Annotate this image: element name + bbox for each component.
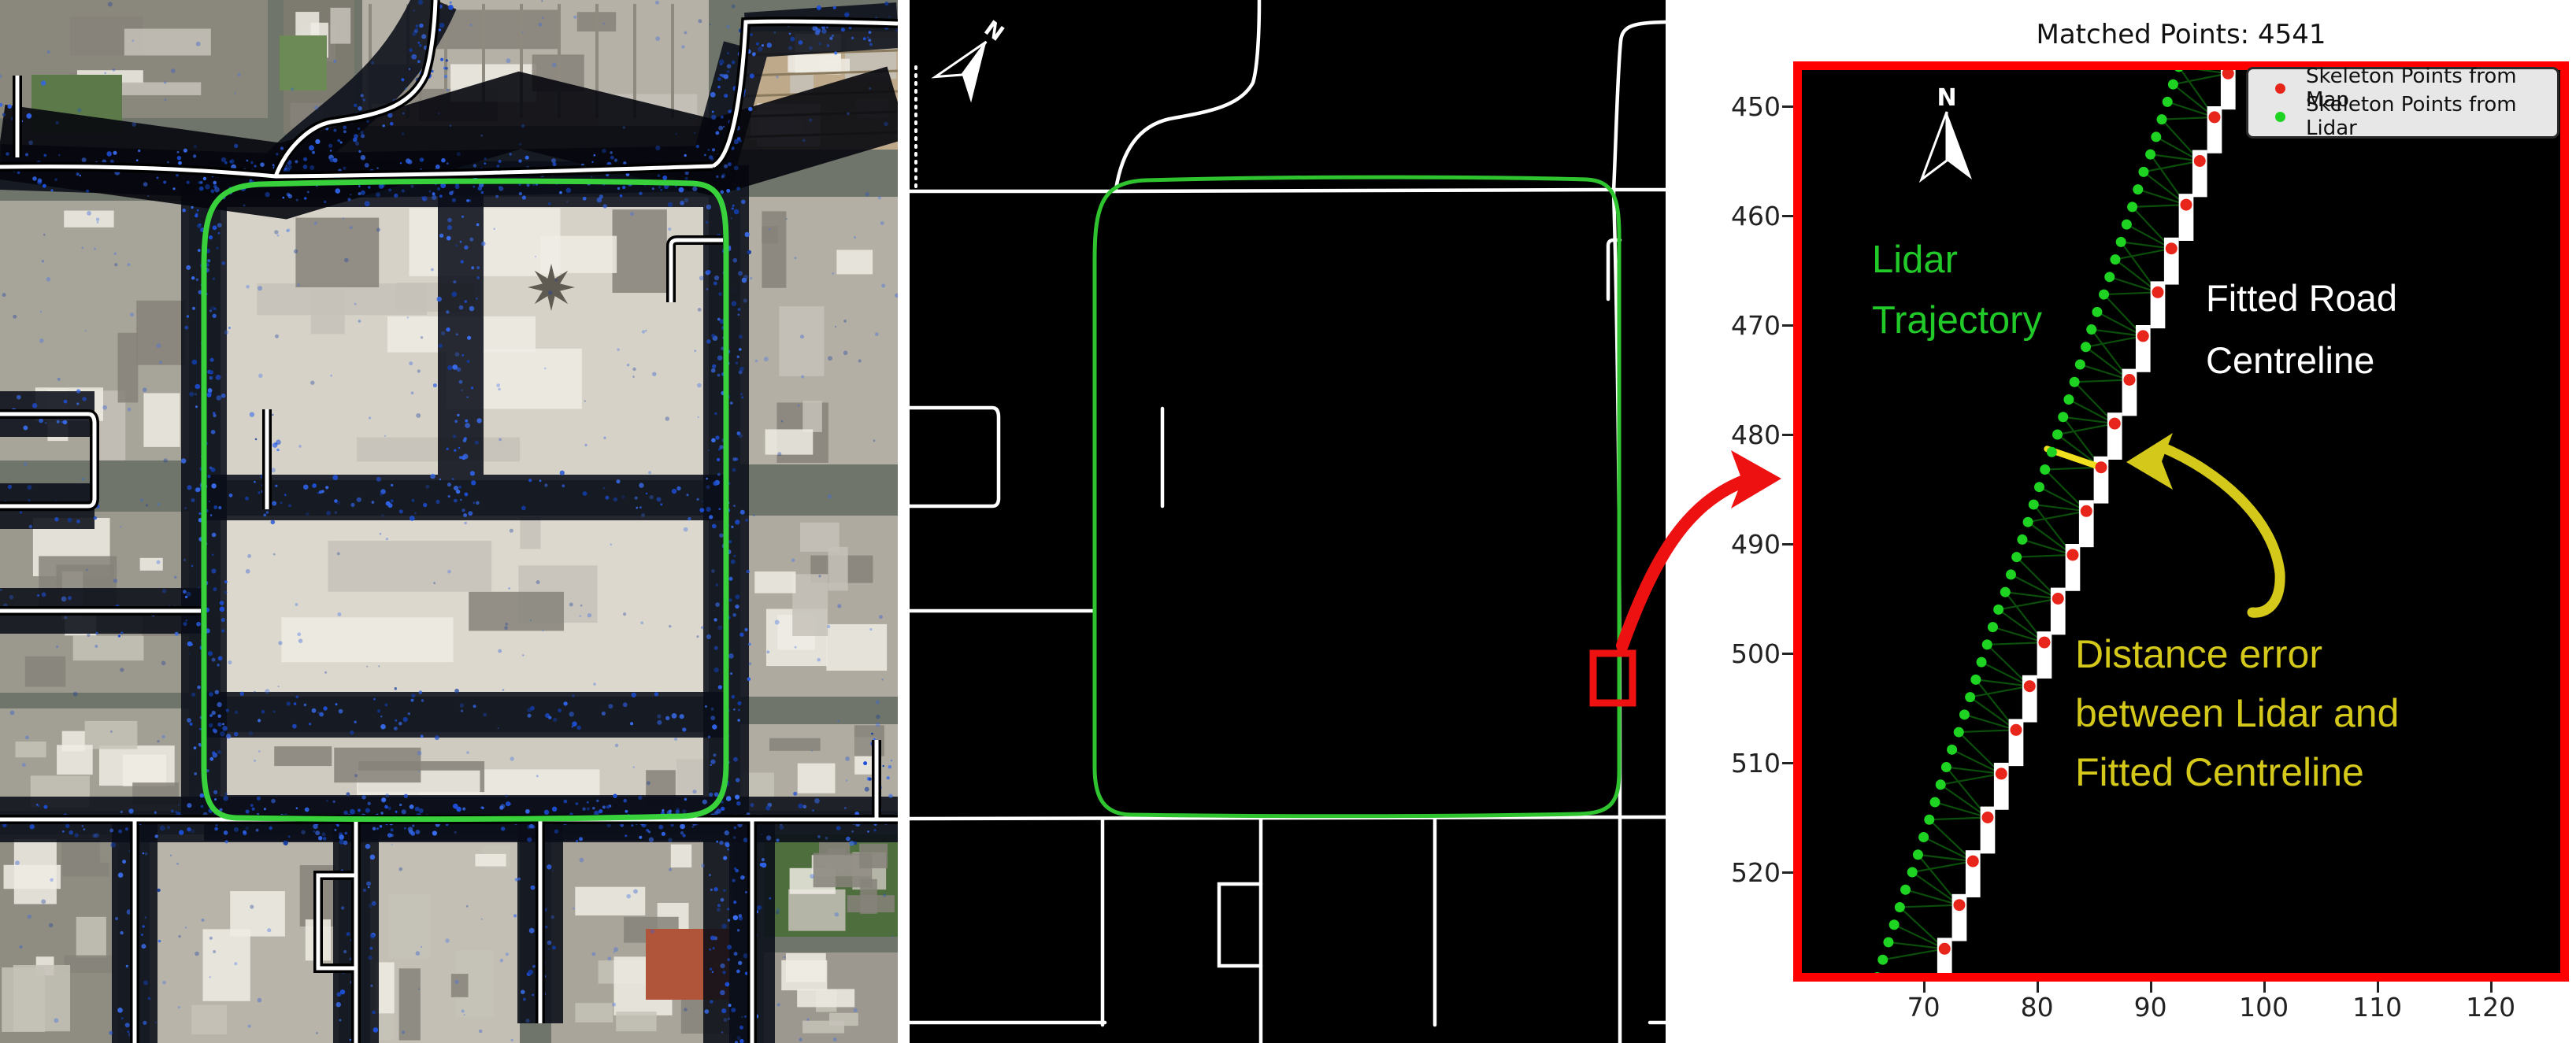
lidar-point <box>711 708 714 711</box>
distance-error-annotation: Distance error between Lidar and Fitted … <box>2075 625 2399 802</box>
lidar-point <box>95 833 99 838</box>
building-roof <box>792 574 828 636</box>
lidar-point <box>572 694 575 697</box>
lidar-point <box>748 662 751 665</box>
lidar-point <box>694 350 696 352</box>
lidar-point <box>869 31 872 34</box>
lidar-point <box>284 841 288 845</box>
lidar-point <box>471 266 474 269</box>
lidar-point <box>728 653 734 659</box>
lidar-point <box>287 228 290 231</box>
lidar-point <box>719 534 723 538</box>
lidar-point <box>187 803 191 808</box>
lidar-point <box>110 842 116 848</box>
lidar-point <box>795 646 797 649</box>
lidar-point <box>739 335 743 338</box>
lidar-skeleton-point <box>2104 272 2115 282</box>
lidar-point <box>655 1 659 5</box>
lidar-point <box>614 159 617 162</box>
lidar-point <box>602 712 606 716</box>
lidar-point <box>658 825 663 830</box>
lidar-point <box>211 568 216 573</box>
lidar-point <box>710 936 715 941</box>
building-roof <box>140 558 163 571</box>
lidar-point <box>316 1032 318 1034</box>
lidar-point <box>494 228 495 230</box>
lidar-point <box>724 94 728 98</box>
lidar-point <box>459 305 464 310</box>
lidar-point <box>658 174 661 177</box>
lidar-point <box>175 811 177 813</box>
lidar-point <box>623 702 628 707</box>
lidar-point <box>411 699 414 702</box>
lidar-point <box>213 412 215 414</box>
lidar-point <box>510 756 514 760</box>
annotation-line: Distance error <box>2075 625 2399 684</box>
lidar-point <box>712 724 717 729</box>
lidar-point <box>307 191 309 194</box>
lidar-point <box>254 165 257 168</box>
lidar-point <box>448 6 450 8</box>
lidar-point <box>381 514 384 517</box>
lidar-point <box>717 904 721 907</box>
lidar-point <box>213 790 217 794</box>
y-tick-label: 470 <box>1714 313 1781 338</box>
lidar-point <box>309 723 311 725</box>
lidar-point <box>708 449 710 451</box>
lidar-point <box>363 98 365 101</box>
lidar-point <box>421 336 423 338</box>
lidar-point <box>65 616 68 620</box>
lidar-point <box>370 934 375 938</box>
lidar-point <box>732 207 734 209</box>
lidar-point <box>505 794 507 797</box>
lidar-point <box>6 152 9 155</box>
building-roof <box>800 523 840 552</box>
lidar-point <box>368 802 371 805</box>
lidar-point <box>250 804 254 807</box>
lidar-point <box>361 134 365 138</box>
building-roof <box>797 989 854 1007</box>
lidar-point <box>529 824 534 829</box>
lidar-point <box>221 629 224 632</box>
lidar-point <box>365 808 370 813</box>
lidar-point <box>727 70 730 73</box>
lidar-point <box>594 154 596 157</box>
lidar-point <box>254 760 256 762</box>
lidar-point <box>498 388 500 390</box>
lidar-point <box>104 72 106 75</box>
lidar-point <box>277 235 280 237</box>
lidar-point <box>366 120 369 123</box>
lidar-point <box>454 499 458 503</box>
lidar-point <box>526 1019 530 1023</box>
lidar-point <box>404 827 406 830</box>
lidar-point <box>201 805 204 808</box>
lidar-point <box>32 176 37 181</box>
lidar-point <box>464 246 468 250</box>
lidar-point <box>120 811 123 813</box>
lidar-point <box>536 580 540 584</box>
lidar-point <box>711 569 715 573</box>
lidar-point <box>737 719 739 721</box>
lidar-skeleton-point <box>1924 815 1934 825</box>
lidar-point <box>613 497 617 501</box>
lidar-point <box>461 216 464 218</box>
lidar-point <box>410 516 415 521</box>
lidar-point <box>418 989 420 990</box>
lidar-point <box>278 641 282 645</box>
lidar-point <box>743 275 748 279</box>
skeleton-background <box>910 0 1666 1043</box>
lidar-point <box>448 495 450 497</box>
y-tick-mark <box>1782 434 1793 436</box>
map-skeleton-point <box>1981 812 1993 823</box>
lidar-point <box>593 682 596 686</box>
lidar-point <box>284 494 287 496</box>
lidar-point <box>777 1003 780 1006</box>
lidar-skeleton-point <box>2099 290 2109 300</box>
building-roof <box>328 541 491 592</box>
lidar-point <box>198 586 200 589</box>
lidar-point <box>706 339 711 344</box>
lidar-point <box>297 283 299 286</box>
lidar-point <box>867 830 869 833</box>
lidar-point <box>228 327 231 329</box>
lidar-point <box>358 106 362 111</box>
building-roof <box>814 853 873 888</box>
lidar-skeleton-point <box>1959 709 1970 719</box>
building-roof <box>65 956 113 973</box>
lidar-point <box>207 475 210 478</box>
lidar-point <box>305 808 309 812</box>
lidar-point <box>715 435 719 439</box>
lidar-point <box>620 194 623 198</box>
lidar-point <box>704 1009 709 1014</box>
lidar-point <box>405 87 406 89</box>
x-tick-label: 80 <box>2002 992 2073 1023</box>
lidar-point <box>258 374 262 378</box>
lidar-point <box>762 858 765 861</box>
lidar-point <box>706 221 709 224</box>
map-skeleton-point <box>2081 505 2092 517</box>
lidar-point <box>791 558 795 562</box>
y-tick-mark <box>1782 543 1793 546</box>
lidar-point <box>390 122 394 126</box>
lidar-point <box>26 113 32 119</box>
building-roof <box>295 218 379 287</box>
lidar-point <box>723 856 727 860</box>
lidar-point <box>869 43 873 46</box>
lidar-point <box>414 512 417 515</box>
lidar-point <box>419 690 423 694</box>
lidar-point <box>28 915 32 919</box>
lidar-point <box>436 500 439 504</box>
lidar-point <box>288 835 291 838</box>
lidar-point <box>272 442 278 448</box>
lidar-skeleton-point <box>2006 569 2016 579</box>
lidar-point <box>54 178 57 181</box>
lidar-point <box>83 828 85 830</box>
lidar-point <box>761 834 762 835</box>
lidar-point <box>528 479 532 482</box>
lidar-point <box>271 520 276 525</box>
lidar-point <box>723 890 725 892</box>
lidar-point <box>330 150 332 152</box>
lidar-point <box>446 59 448 61</box>
lidar-point <box>654 692 658 696</box>
lidar-point <box>220 601 224 605</box>
lidar-point <box>810 874 814 878</box>
lidar-point <box>461 1010 465 1013</box>
lidar-point <box>466 905 469 908</box>
lidar-skeleton-point <box>2092 307 2102 317</box>
lidar-point <box>416 413 421 418</box>
lidar-point <box>714 276 719 280</box>
lidar-skeleton-point <box>2000 587 2011 597</box>
lidar-point <box>692 187 697 191</box>
lidar-point <box>208 388 213 393</box>
lidar-point <box>465 522 467 524</box>
lidar-point <box>466 751 469 753</box>
lidar-point <box>884 122 888 127</box>
annotation-line: between Lidar and <box>2075 684 2399 743</box>
lidar-point <box>319 712 324 717</box>
lidar-point <box>612 1003 616 1007</box>
lidar-point <box>86 569 88 571</box>
lidar-point <box>276 449 280 452</box>
lidar-point <box>867 36 869 39</box>
lidar-point <box>844 12 849 17</box>
lidar-point <box>115 917 118 920</box>
lidar-point <box>234 962 237 965</box>
lidar-point <box>657 720 662 725</box>
lidar-point <box>147 195 149 197</box>
lidar-point <box>615 744 618 747</box>
lidar-point <box>43 805 47 809</box>
lidar-point <box>382 797 386 801</box>
lidar-point <box>65 824 70 829</box>
lidar-point <box>194 145 197 148</box>
lidar-point <box>385 704 388 707</box>
lidar-point <box>584 400 586 401</box>
lidar-point <box>125 827 128 830</box>
lidar-point <box>777 908 780 912</box>
lidar-point <box>380 533 382 535</box>
lidar-point <box>163 458 167 462</box>
lidar-point <box>421 734 424 738</box>
lidar-point <box>189 653 191 654</box>
lidar-point <box>826 26 828 28</box>
lidar-point <box>210 376 213 379</box>
lidar-point <box>777 452 781 456</box>
building-roof <box>469 592 564 631</box>
lidar-point <box>649 838 654 842</box>
lidar-point <box>680 714 684 719</box>
y-tick-mark <box>1782 105 1793 108</box>
lidar-point <box>650 930 654 934</box>
lidar-skeleton-point <box>1895 902 1905 912</box>
lidar-point <box>199 745 202 747</box>
lidar-point <box>143 853 145 855</box>
building-roof <box>765 429 814 454</box>
lidar-point <box>132 39 135 42</box>
lidar-point <box>280 501 283 504</box>
lidar-point <box>187 315 189 317</box>
lidar-point <box>576 726 581 730</box>
lidar-point <box>679 187 684 193</box>
lidar-point <box>309 145 314 150</box>
lidar-point <box>432 195 436 200</box>
lidar-point <box>177 156 181 160</box>
lidar-point <box>183 622 187 626</box>
map-skeleton-point <box>2208 111 2220 123</box>
lidar-point <box>160 826 165 831</box>
lidar-point <box>712 364 716 368</box>
lidar-point <box>617 349 619 351</box>
lidar-point <box>128 408 132 412</box>
x-tick-mark <box>2377 982 2379 993</box>
lidar-point <box>734 952 738 956</box>
lidar-point <box>326 800 328 802</box>
lidar-point <box>620 824 622 827</box>
lidar-point <box>711 438 716 443</box>
lidar-point <box>10 711 15 716</box>
lidar-point <box>141 934 143 936</box>
lidar-point <box>417 751 422 756</box>
lidar-point <box>161 661 166 666</box>
lidar-point <box>765 806 770 811</box>
lidar-point <box>748 107 753 112</box>
y-tick-label: 460 <box>1714 203 1781 229</box>
lidar-skeleton-point <box>2157 114 2167 124</box>
lidar-point <box>727 64 732 68</box>
lidar-point <box>254 481 256 483</box>
lidar-point <box>712 524 717 529</box>
lidar-point <box>484 162 487 165</box>
lidar-point <box>740 393 743 395</box>
lidar-point <box>547 864 551 869</box>
y-tick-label: 450 <box>1714 94 1781 120</box>
lidar-point <box>733 901 736 904</box>
lidar-point <box>835 912 839 916</box>
lidar-point <box>56 645 58 648</box>
lidar-point <box>602 805 606 808</box>
lidar-point <box>410 804 414 809</box>
lidar-point <box>622 186 625 189</box>
lidar-point <box>457 414 459 416</box>
lidar-point <box>380 493 383 496</box>
lidar-point <box>358 320 361 323</box>
lidar-point <box>339 709 343 714</box>
lidar-point <box>246 827 249 830</box>
lidar-point <box>229 494 233 497</box>
lidar-point <box>707 149 710 151</box>
lidar-point <box>62 830 65 833</box>
lidar-point <box>39 419 43 423</box>
building-roof <box>73 636 144 661</box>
lidar-point <box>694 132 695 134</box>
lidar-point <box>213 505 217 509</box>
lidar-point <box>734 827 736 829</box>
lidar-point <box>361 131 364 134</box>
lidar-point <box>668 838 672 842</box>
lidar-point <box>587 801 589 804</box>
lidar-point <box>377 709 380 712</box>
lidar-point <box>439 23 444 28</box>
lidar-point <box>192 307 195 310</box>
lidar-point <box>158 940 161 942</box>
lidar-point <box>473 705 476 708</box>
lidar-point <box>235 92 236 94</box>
lidar-point <box>599 194 603 198</box>
lidar-point <box>713 481 717 486</box>
skeleton-map-graphic: N <box>910 0 1666 1043</box>
lidar-point <box>365 844 371 849</box>
lidar-point <box>743 953 748 958</box>
lidar-point <box>258 750 261 753</box>
lidar-point <box>30 824 35 829</box>
lidar-point <box>87 634 90 637</box>
lidar-point <box>296 199 298 202</box>
lidar-point <box>197 623 200 626</box>
lidar-point <box>739 1026 743 1030</box>
lidar-point <box>753 514 755 516</box>
lidar-point <box>445 67 448 70</box>
lidar-trajectory-annotation: Lidar Trajectory <box>1872 230 2042 351</box>
lidar-point <box>716 176 718 178</box>
lidar-point <box>531 886 536 890</box>
lidar-point <box>717 626 722 631</box>
lidar-point <box>199 728 202 730</box>
lidar-point <box>602 23 605 25</box>
lidar-point <box>354 774 358 777</box>
lidar-point <box>435 735 439 740</box>
lidar-point <box>265 689 269 693</box>
lidar-skeleton-point <box>1941 762 1951 772</box>
lidar-point <box>433 582 436 584</box>
lidar-point <box>591 176 592 178</box>
lidar-point <box>96 218 99 221</box>
lidar-point <box>814 798 820 804</box>
lidar-point <box>849 841 854 846</box>
map-skeleton-point <box>2052 593 2064 605</box>
lidar-point <box>662 832 665 836</box>
lidar-point <box>863 761 867 765</box>
lidar-point <box>716 583 718 586</box>
lidar-point <box>681 45 684 48</box>
lidar-point <box>721 807 725 811</box>
lidar-point <box>245 497 249 501</box>
lidar-point <box>846 779 848 782</box>
lidar-point <box>466 360 469 363</box>
lidar-point <box>706 485 710 489</box>
lidar-point <box>501 827 505 830</box>
lidar-point <box>732 205 735 207</box>
lidar-point <box>469 24 472 26</box>
lidar-point <box>354 303 357 305</box>
lidar-point <box>157 560 161 564</box>
lidar-point <box>315 139 320 144</box>
building-roof <box>274 746 332 766</box>
lidar-point <box>527 838 532 842</box>
lidar-point <box>184 507 187 509</box>
lidar-point <box>76 172 80 176</box>
lidar-point <box>447 236 451 241</box>
lidar-point <box>399 509 403 513</box>
lidar-point <box>143 981 148 986</box>
lidar-point <box>617 187 620 190</box>
